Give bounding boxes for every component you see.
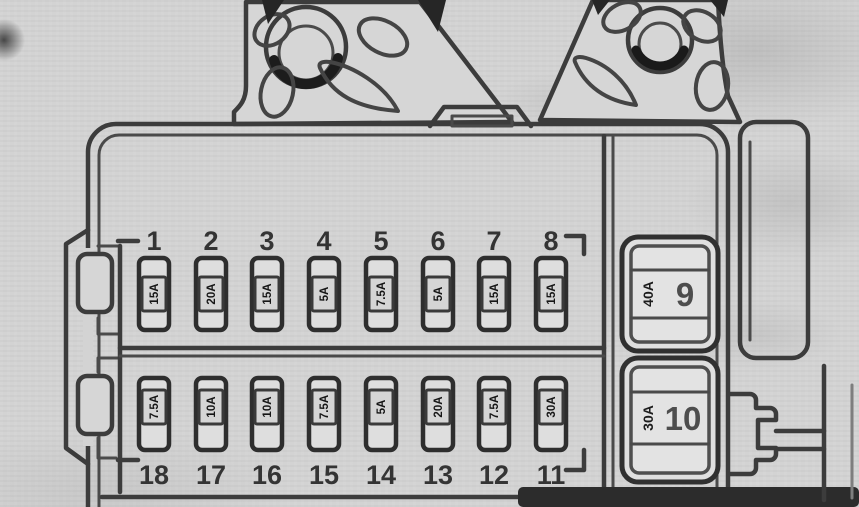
- fuse-number: 9: [676, 276, 694, 313]
- fuse-number: 7: [486, 226, 501, 256]
- fuse-5: 5 7.5A: [366, 226, 396, 330]
- fuse-15: 7.5A 15: [309, 378, 339, 490]
- fuse-number: 18: [139, 460, 169, 490]
- fuse-amp-rating: 7.5A: [376, 282, 388, 306]
- right-flange: [730, 122, 852, 500]
- fuse-amp-rating: 20A: [206, 283, 218, 304]
- fuse-amp-rating: 40A: [640, 281, 656, 307]
- fuse-box-drawing: 1 15A 2 20A 3 15A 4 5A 5 7.5A 6 5A 7 15A: [0, 0, 859, 507]
- connector-tab-upper: [78, 254, 112, 312]
- fuse-amp-rating: 7.5A: [149, 395, 161, 419]
- fuse-number: 4: [316, 226, 331, 256]
- step-line: [98, 318, 120, 334]
- fuse-amp-rating: 15A: [262, 283, 274, 304]
- fuse-number: 1: [146, 226, 161, 256]
- fuse-number: 15: [309, 460, 339, 490]
- fuse-number: 10: [665, 400, 702, 437]
- row2-bracket: [566, 450, 584, 470]
- fuse-16: 10A 16: [252, 378, 282, 490]
- fuse-amp-rating: 7.5A: [489, 395, 501, 419]
- fuse-number: 5: [373, 226, 388, 256]
- fuse-18: 7.5A 18: [139, 378, 169, 490]
- fuse-13: 20A 13: [423, 378, 453, 490]
- fuse-amp-rating: 30A: [546, 396, 558, 417]
- fuse-number: 2: [203, 226, 218, 256]
- fuse-11: 30A 11: [536, 378, 566, 490]
- left-connector: [66, 230, 120, 464]
- connector-tab-lower: [78, 376, 112, 434]
- fuse-amp-rating: 15A: [149, 283, 161, 304]
- bottom-dark-bar: [518, 487, 859, 507]
- fuse-number: 3: [259, 226, 274, 256]
- fuse-1: 1 15A: [139, 226, 169, 330]
- fuse-amp-rating: 20A: [433, 396, 445, 417]
- fuse-number: 6: [430, 226, 445, 256]
- fuse-number: 14: [366, 460, 396, 490]
- step-line: [98, 358, 120, 372]
- fuse-box-diagram: 1 15A 2 20A 3 15A 4 5A 5 7.5A 6 5A 7 15A: [0, 0, 859, 507]
- fuse-number: 17: [196, 460, 226, 490]
- fuse-amp-rating: 5A: [433, 287, 445, 302]
- fuse-10: 30A 10: [622, 358, 718, 482]
- fuse-amp-rating: 30A: [640, 405, 656, 431]
- fuse-amp-rating: 15A: [489, 283, 501, 304]
- fuse-amp-rating: 7.5A: [319, 395, 331, 419]
- fuse-amp-rating: 5A: [376, 400, 388, 415]
- fuse-amp-rating: 5A: [319, 287, 331, 302]
- fuse-4: 4 5A: [309, 226, 339, 330]
- fuse-amp-rating: 10A: [262, 396, 274, 417]
- fuse-number: 13: [423, 460, 453, 490]
- fuse-6: 6 5A: [423, 226, 453, 330]
- fuse-8: 8 15A: [536, 226, 566, 330]
- fuse-14: 5A 14: [366, 378, 396, 490]
- fuse-12: 7.5A 12: [479, 378, 509, 490]
- fuse-amp-rating: 15A: [546, 283, 558, 304]
- fuse-17: 10A 17: [196, 378, 226, 490]
- row1-bracket: [566, 236, 584, 254]
- fuse-7: 7 15A: [479, 226, 509, 330]
- fuse-3: 3 15A: [252, 226, 282, 330]
- side-clip: [730, 394, 776, 474]
- fuse-number: 12: [479, 460, 509, 490]
- step-line: [98, 438, 116, 458]
- fuse-9: 40A 9: [622, 237, 718, 351]
- fuse-number: 11: [537, 460, 566, 490]
- fuse-2: 2 20A: [196, 226, 226, 330]
- fuse-amp-rating: 10A: [206, 396, 218, 417]
- mounting-tab-right: [540, 0, 740, 122]
- fuse-number: 8: [543, 226, 558, 256]
- fuse-number: 16: [252, 460, 282, 490]
